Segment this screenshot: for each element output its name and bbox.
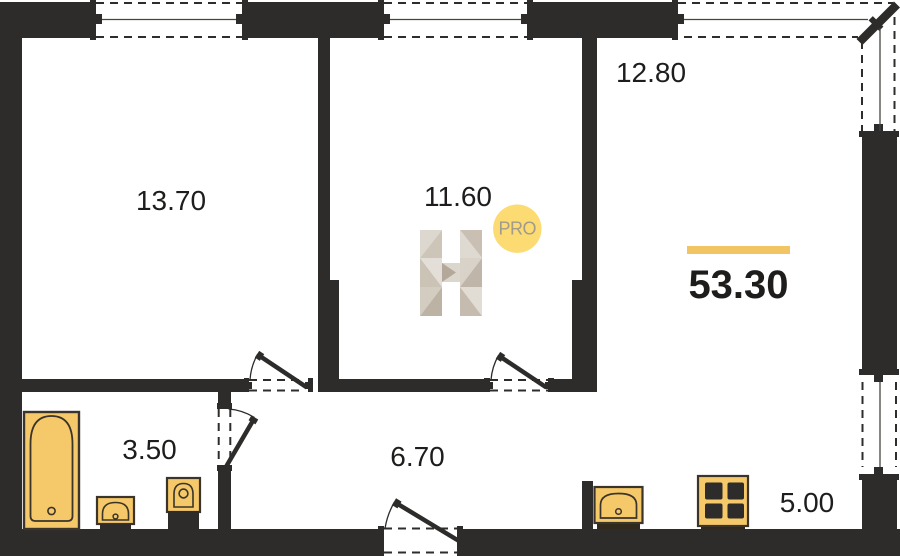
svg-text:5.00: 5.00 xyxy=(780,487,835,518)
svg-text:53.30: 53.30 xyxy=(688,263,788,307)
svg-text:11.60: 11.60 xyxy=(424,181,492,212)
svg-text:PRO: PRO xyxy=(499,219,537,239)
svg-text:12.80: 12.80 xyxy=(616,57,686,88)
svg-text:3.50: 3.50 xyxy=(122,434,177,465)
svg-text:6.70: 6.70 xyxy=(390,441,445,472)
svg-text:13.70: 13.70 xyxy=(136,185,206,216)
